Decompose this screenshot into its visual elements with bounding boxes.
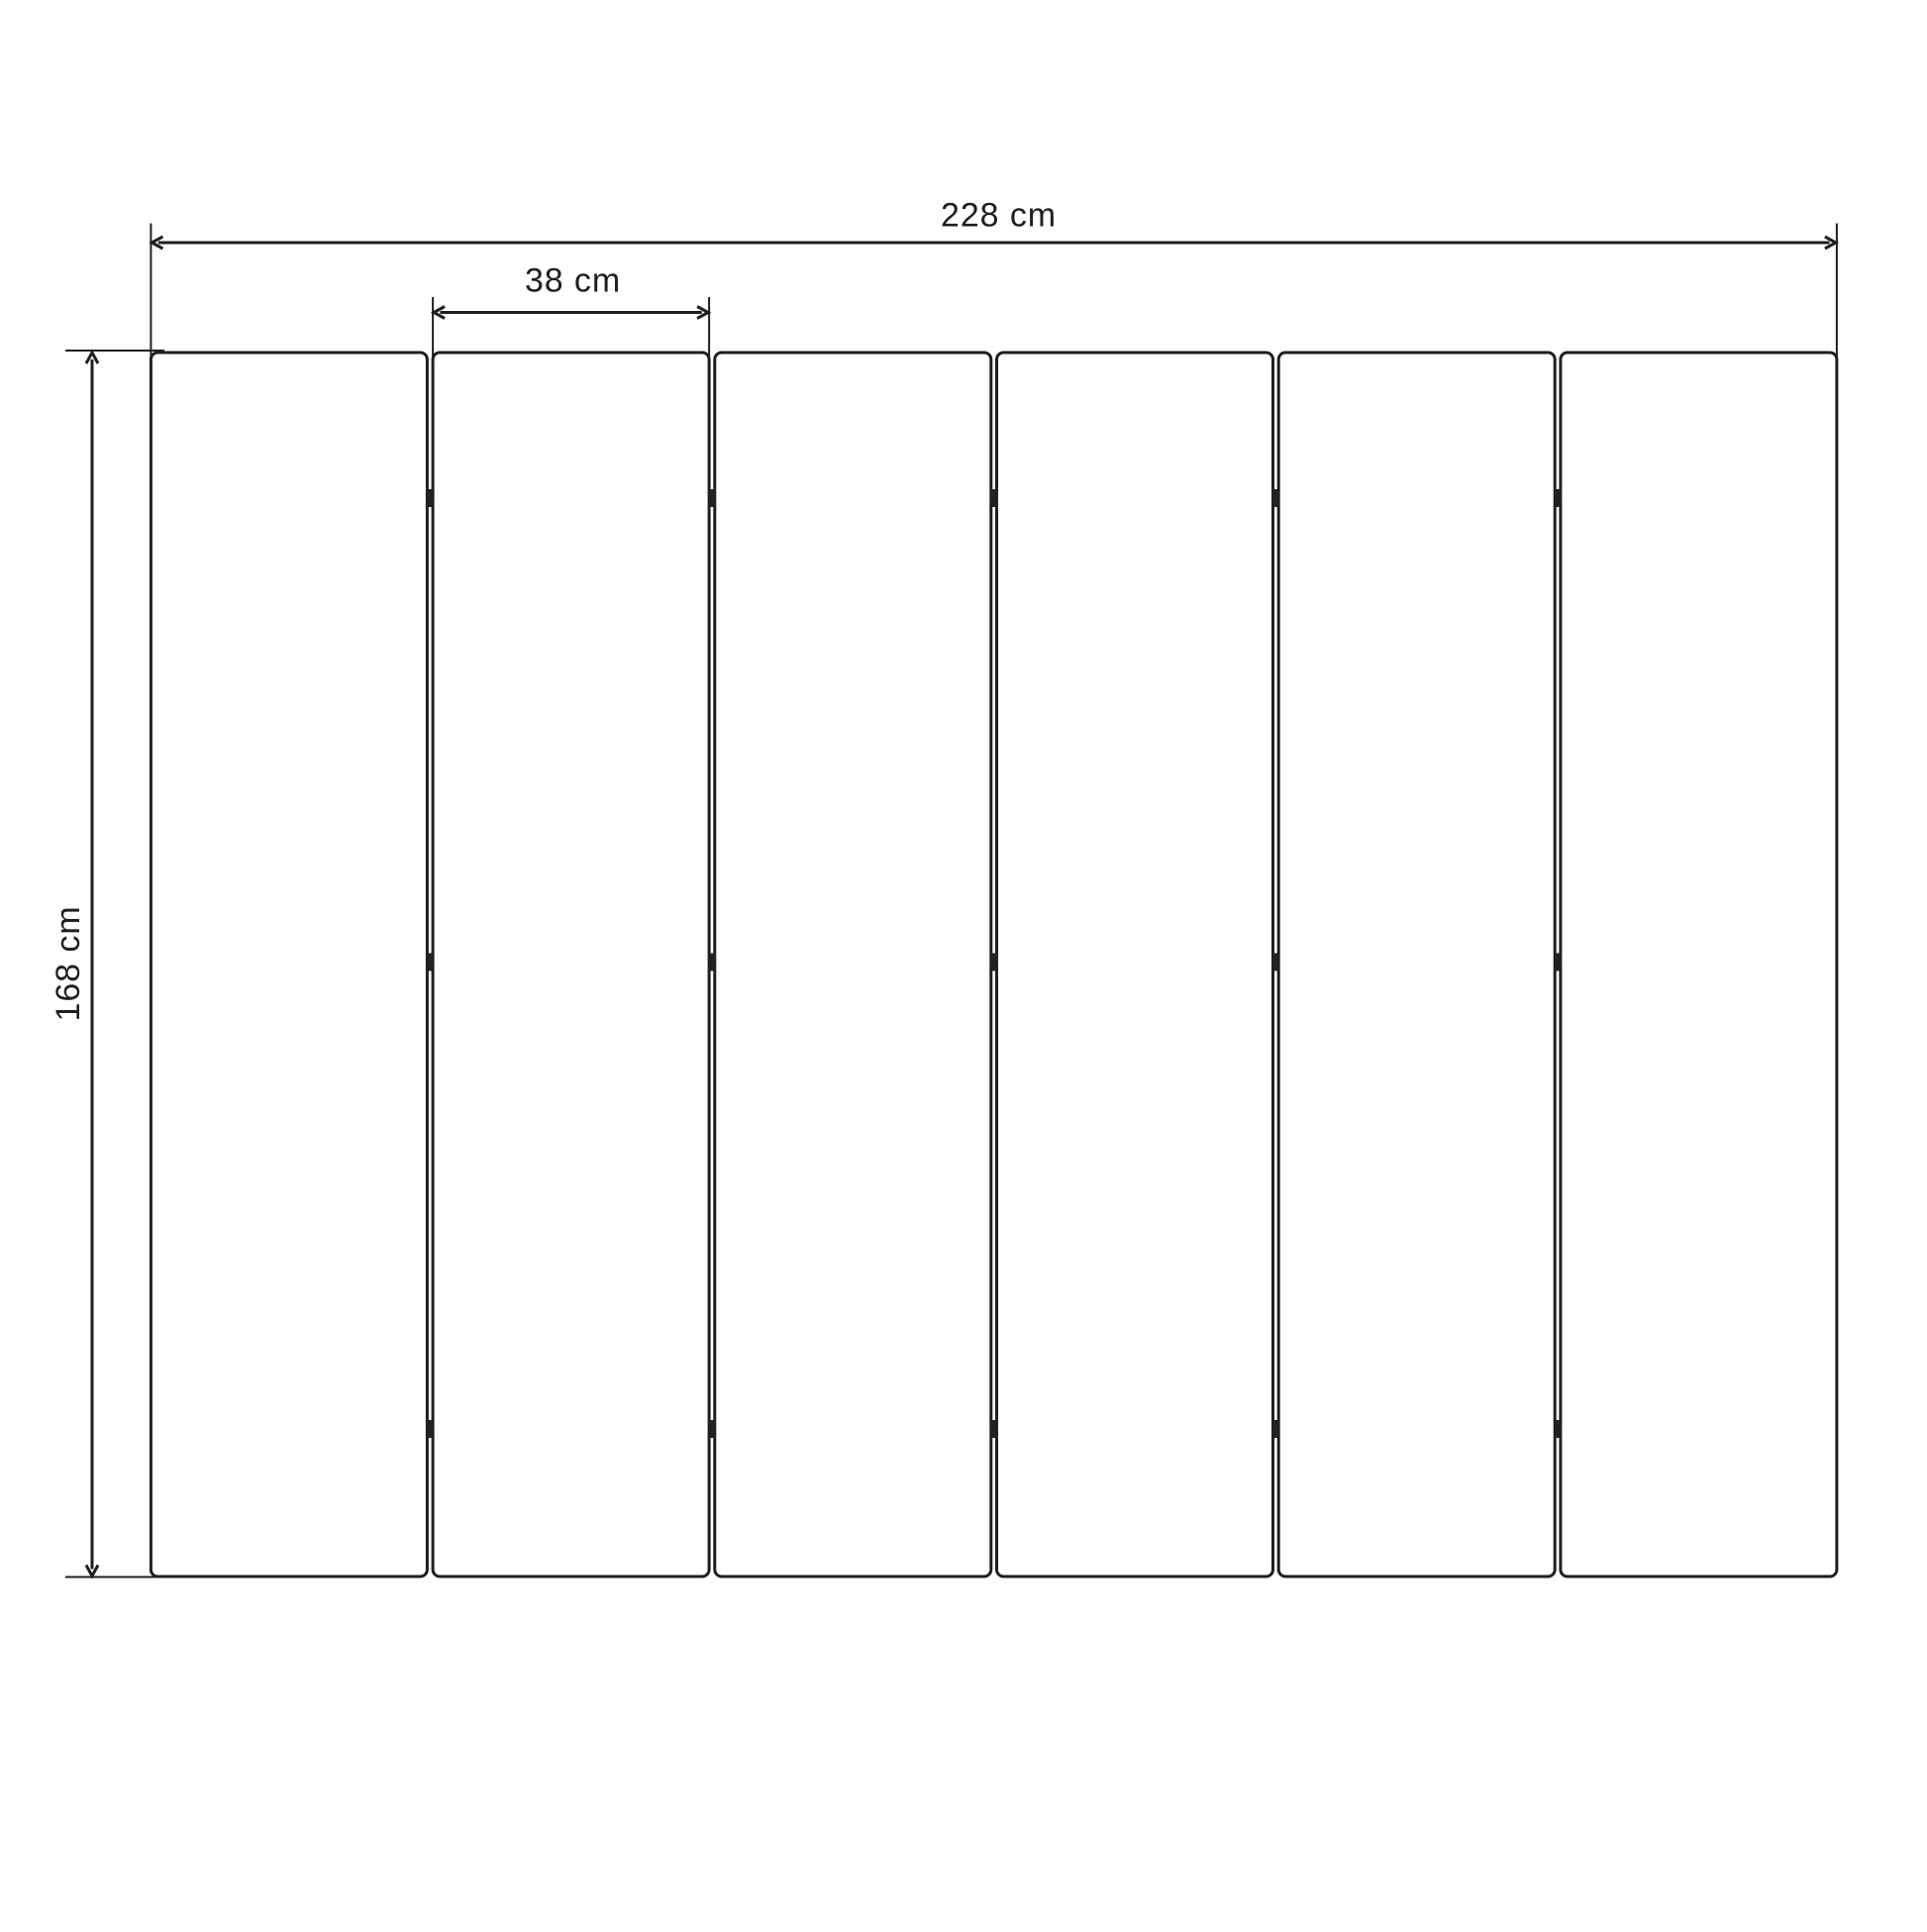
svg-text:168 cm: 168 cm	[50, 906, 87, 1022]
svg-text:38 cm: 38 cm	[525, 262, 621, 300]
svg-text:228 cm: 228 cm	[941, 197, 1057, 235]
